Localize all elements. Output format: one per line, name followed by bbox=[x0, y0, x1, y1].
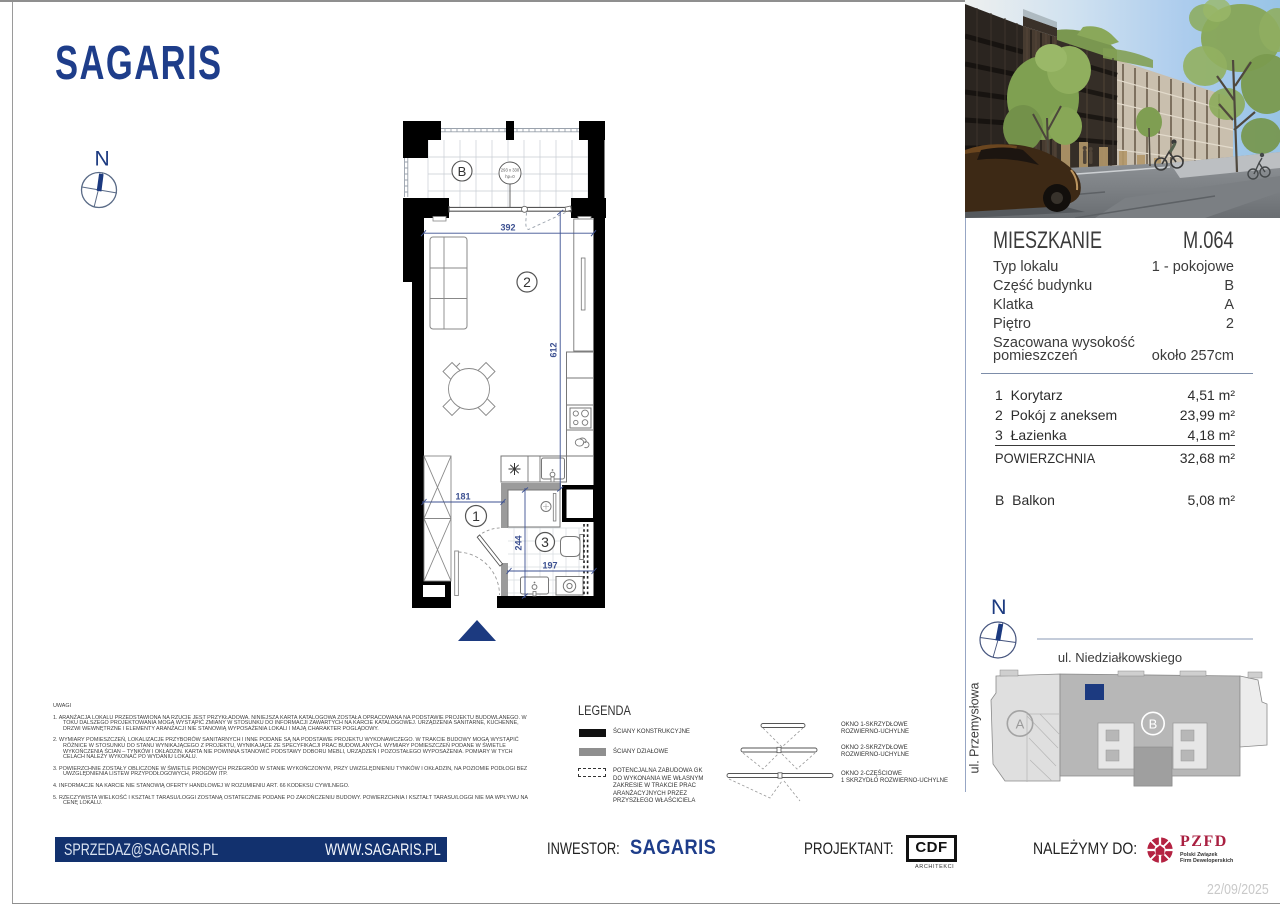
svg-text:2: 2 bbox=[523, 274, 531, 290]
svg-text:N: N bbox=[991, 595, 1007, 619]
svg-text:1: 1 bbox=[472, 508, 480, 524]
svg-text:ul. Przemysłowa: ul. Przemysłowa bbox=[968, 682, 982, 773]
svg-text:197: 197 bbox=[542, 561, 557, 571]
svg-text:3: 3 bbox=[541, 534, 549, 550]
svg-text:293 x 330: 293 x 330 bbox=[501, 168, 520, 173]
svg-text:hp=0: hp=0 bbox=[505, 174, 515, 179]
svg-text:612: 612 bbox=[549, 342, 559, 357]
svg-text:A: A bbox=[1016, 717, 1025, 732]
svg-text:392: 392 bbox=[500, 223, 515, 233]
svg-text:181: 181 bbox=[455, 492, 470, 502]
svg-text:N: N bbox=[95, 148, 110, 171]
svg-text:ul. Niedziałkowskiego: ul. Niedziałkowskiego bbox=[1058, 650, 1182, 665]
svg-text:B: B bbox=[1149, 717, 1158, 732]
svg-text:B: B bbox=[458, 164, 467, 179]
svg-text:244: 244 bbox=[514, 535, 524, 550]
